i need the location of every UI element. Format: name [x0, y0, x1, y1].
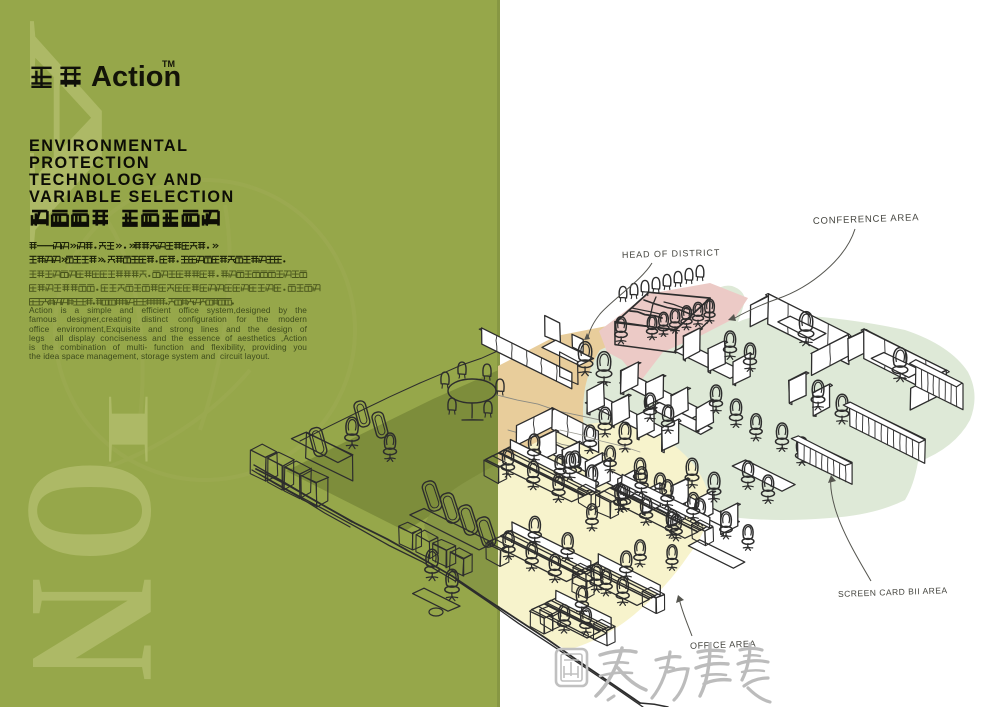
svg-text:SCREEN CARD BII AREA: SCREEN CARD BII AREA — [838, 585, 948, 599]
svg-text:N: N — [0, 577, 192, 681]
svg-text:O: O — [0, 459, 192, 562]
svg-text:I: I — [96, 390, 161, 468]
svg-text:CONFERENCE AREA: CONFERENCE AREA — [813, 212, 920, 227]
svg-text:HEAD OF DISTRICT: HEAD OF DISTRICT — [622, 247, 721, 260]
